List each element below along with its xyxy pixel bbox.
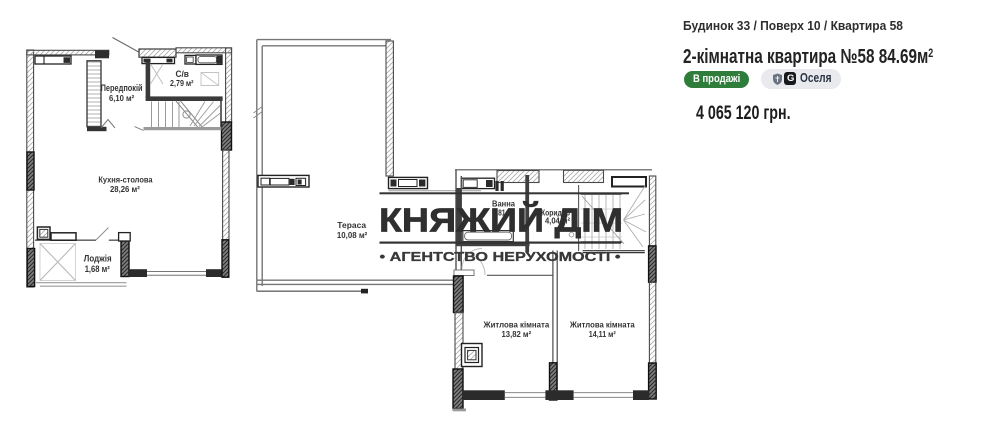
- svg-text:1,68 м²: 1,68 м²: [85, 264, 110, 274]
- svg-text:6,10 м²: 6,10 м²: [109, 93, 134, 103]
- svg-text:Тераса: Тераса: [337, 220, 366, 230]
- svg-text:Лоджія: Лоджія: [84, 253, 112, 263]
- svg-text:С/в: С/в: [175, 69, 189, 79]
- svg-text:Житлова кімната: Житлова кімната: [569, 320, 635, 329]
- svg-text:14,11 м²: 14,11 м²: [589, 330, 616, 339]
- svg-text:28,26 м²: 28,26 м²: [110, 184, 140, 194]
- svg-text:Житлова кімната: Житлова кімната: [483, 320, 550, 329]
- svg-text:13,82 м²: 13,82 м²: [502, 330, 532, 339]
- svg-text:2,79 м²: 2,79 м²: [170, 79, 194, 88]
- svg-text:10,08 м²: 10,08 м²: [337, 230, 368, 240]
- svg-text:Кухня-столова: Кухня-столова: [98, 174, 152, 184]
- svg-text:• АГЕНТСТВО НЕРУХОМОСТІ •: • АГЕНТСТВО НЕРУХОМОСТІ •: [380, 249, 621, 264]
- svg-text:КНЯЖИЙ ДІМ: КНЯЖИЙ ДІМ: [379, 201, 623, 240]
- svg-text:Передпокій: Передпокій: [101, 83, 143, 93]
